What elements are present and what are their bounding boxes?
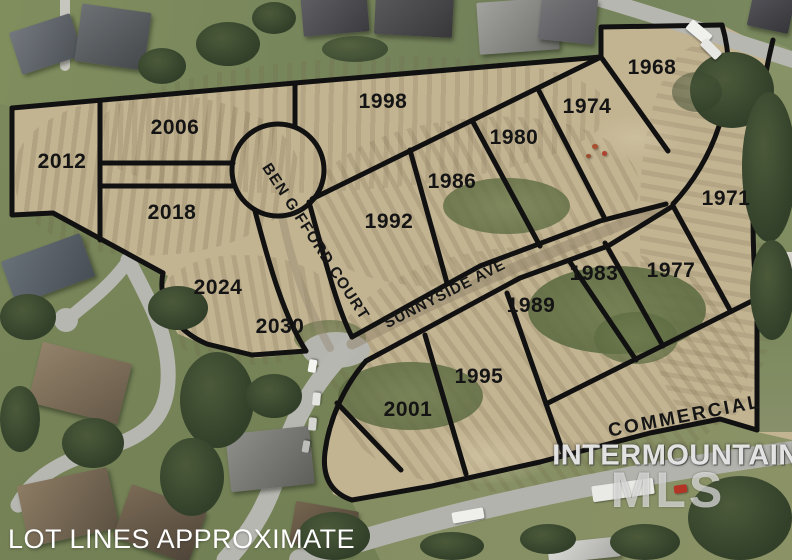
tree-canopy [252,2,296,34]
tree-canopy [196,22,260,66]
lot-lines-disclaimer: LOT LINES APPROXIMATE [8,524,355,555]
lot-label-2012: 2012 [38,150,87,174]
car [312,392,321,406]
tree-canopy [520,524,576,554]
lot-label-1968: 1968 [628,56,677,80]
lot-label-1971: 1971 [702,187,751,211]
car [308,417,317,431]
tree-canopy [322,36,388,62]
lot-label-1977: 1977 [647,259,696,283]
aerial-plat-map: 1968 1971 1974 1977 1980 1983 1986 1989 … [0,0,792,560]
tree-canopy [672,72,722,112]
tree-canopy [420,532,484,560]
tree-canopy [0,386,40,452]
cul-de-sac-pavement [54,308,78,332]
lot-label-2018: 2018 [148,201,197,225]
lot-label-1992: 1992 [365,210,414,234]
lot-label-2030: 2030 [256,315,305,339]
lot-line [324,361,366,500]
tree-canopy [180,352,254,448]
lot-label-1995: 1995 [455,365,504,389]
lot-label-1986: 1986 [428,170,477,194]
tree-canopy [246,374,302,418]
watermark-mls: MLS [611,461,726,519]
tree-canopy [742,92,792,242]
debris [602,151,607,156]
lot-label-2001: 2001 [384,398,433,422]
lot-label-1983: 1983 [570,262,619,286]
lot-label-1974: 1974 [563,95,612,119]
lot-line [546,299,756,404]
lot-label-1989: 1989 [507,294,556,318]
house [300,0,369,37]
tree-canopy [750,240,792,340]
lot-label-2006: 2006 [151,116,200,140]
tree-canopy [138,48,186,84]
house [538,0,599,45]
lot-line [673,206,730,310]
tree-canopy [160,438,224,516]
lot-label-1998: 1998 [359,90,408,114]
lot-label-1980: 1980 [490,126,539,150]
tree-canopy [62,418,124,468]
lot-label-2024: 2024 [194,276,243,300]
house [374,0,454,38]
tree-canopy [0,294,56,340]
debris [586,154,591,158]
debris [592,144,598,149]
tree-canopy [610,524,680,560]
